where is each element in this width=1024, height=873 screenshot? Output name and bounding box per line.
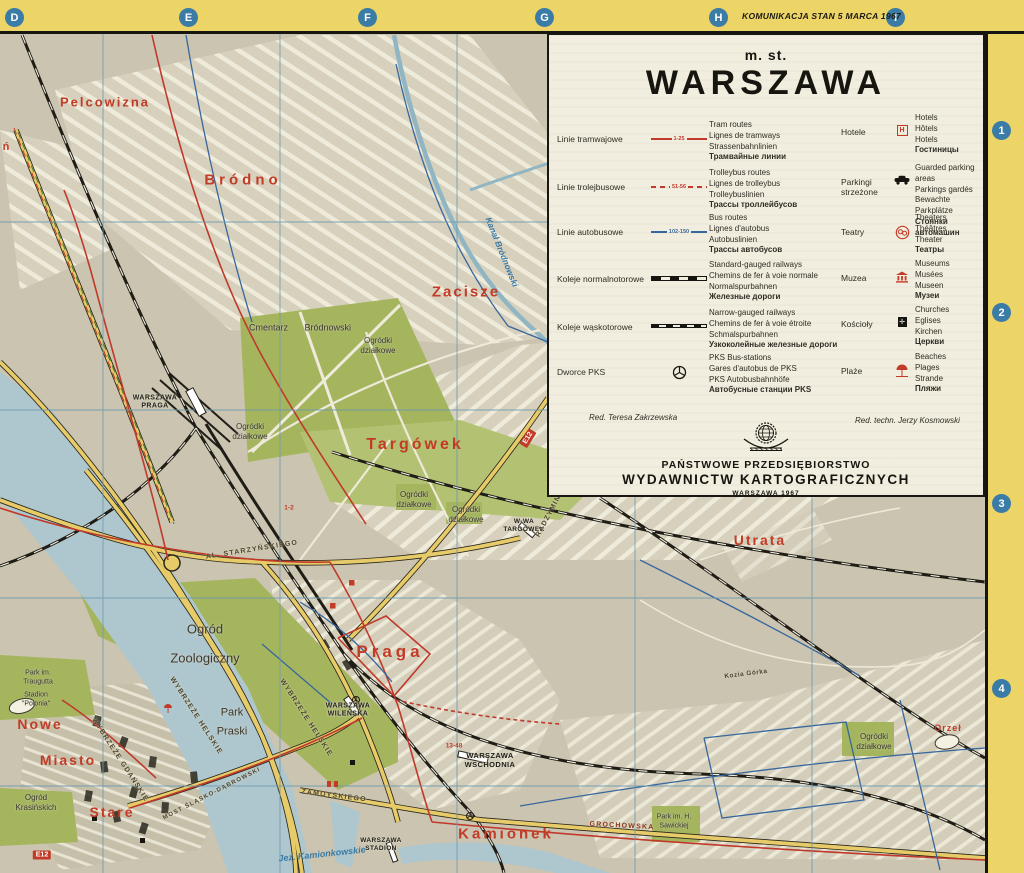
legend-translation: Churches bbox=[915, 305, 949, 316]
legend-translation: Strassenbahnlinien bbox=[709, 142, 786, 153]
legend-translation: Трамвайные линии bbox=[709, 152, 786, 163]
legend-row-pks: Dworce PKS PKS Bus-stations Gares d'auto… bbox=[557, 353, 811, 396]
legend-translation: Hotels bbox=[915, 113, 959, 124]
church-icon bbox=[140, 838, 145, 843]
grid-marker-G: G bbox=[535, 8, 554, 27]
hotel-icon: H bbox=[897, 125, 908, 136]
legend-translation: Bus routes bbox=[709, 213, 782, 224]
legend-translation: Théâtres bbox=[915, 224, 947, 235]
publisher-line1: PAŃSTWOWE PRZEDSIĘBIORSTWO bbox=[549, 459, 983, 471]
legend-label: Koleje normalnotorowe bbox=[557, 260, 649, 284]
map-sheet: Pelcowizna Bródno Zacisze Targówek Praga… bbox=[0, 0, 1024, 873]
district-label-orzel: Orzeł bbox=[934, 723, 962, 733]
legend-label: Linie trolejbusowe bbox=[557, 168, 649, 192]
legend-translation: Theaters bbox=[915, 213, 947, 224]
route-badge-e12-south: E12 bbox=[33, 851, 51, 860]
tram-route-numbers: 1-25 bbox=[672, 136, 687, 142]
legend-translation: PKS Autobusbahnhöfe bbox=[709, 375, 811, 386]
legend-translation: Автобусные станции PKS bbox=[709, 385, 811, 396]
legend-translation: Tram routes bbox=[709, 120, 786, 131]
legend-translation: Трассы автобусов bbox=[709, 245, 782, 256]
legend-translation: Lignes de tramways bbox=[709, 131, 786, 142]
publisher-logo bbox=[736, 419, 796, 457]
publisher-line2: WYDAWNICTW KARTOGRAFICZNYCH bbox=[549, 472, 983, 487]
museum-icon bbox=[895, 271, 909, 283]
legend-label: Plaże bbox=[841, 352, 889, 376]
legend-row-tram: Linie tramwajowe 1-25 Tram routes Lignes… bbox=[557, 120, 786, 163]
place-label-ogrodki-4: Ogródki działkowe bbox=[440, 505, 492, 525]
church-icon bbox=[350, 760, 355, 765]
trolleybus-line-symbol: 51-56 bbox=[651, 184, 707, 190]
legend-translation: Musées bbox=[915, 270, 950, 281]
place-label-stadion-polonia: Stadion "Polonia" bbox=[13, 691, 59, 709]
grid-marker-2: 2 bbox=[992, 303, 1011, 322]
place-label-ogrodki-2: Ogródki działkowe bbox=[224, 422, 276, 442]
trolleybus-route-numbers: 51-56 bbox=[670, 184, 688, 190]
district-label-pelcowizna: Pelcowizna bbox=[60, 95, 150, 110]
legend-translation: Церкви bbox=[915, 337, 949, 348]
district-label-utrata: Utrata bbox=[734, 532, 786, 548]
margin-band-right bbox=[988, 31, 1024, 873]
legend-label: Linie tramwajowe bbox=[557, 120, 649, 144]
tram-line-symbol: 1-25 bbox=[651, 136, 707, 142]
legend-label: Kościoły bbox=[841, 305, 889, 329]
legend-label: Linie autobusowe bbox=[557, 213, 649, 237]
place-label-ogrod-krasinskich: Ogród Krasińskich bbox=[8, 793, 64, 813]
district-label-nowe: Nowe bbox=[17, 716, 62, 732]
legend-translation: Narrow-gauged railways bbox=[709, 308, 837, 319]
legend-translation: Трассы троллейбусов bbox=[709, 200, 797, 211]
legend-translation: Eglises bbox=[915, 316, 949, 327]
narrow-railway-symbol bbox=[651, 324, 707, 328]
district-label-stare: Stare bbox=[89, 804, 134, 820]
legend-translation: Museums bbox=[915, 259, 950, 270]
map-title: m. st. WARSZAWA bbox=[549, 47, 983, 103]
legend-translation: Trolleybus routes bbox=[709, 168, 797, 179]
legend-translation: Hôtels bbox=[915, 124, 959, 135]
legend-translation: Узкоколейные железные дороги bbox=[709, 340, 837, 351]
legend-label: Koleje wąskotorowe bbox=[557, 308, 649, 332]
legend-translation: Normalspurbahnen bbox=[709, 282, 818, 293]
legend-translation: Музеи bbox=[915, 291, 950, 302]
place-label-ogrodki-1: Ogródki działkowe bbox=[352, 336, 404, 356]
legend-translation: Kirchen bbox=[915, 327, 949, 338]
route-number-13-48: 13-48 bbox=[446, 743, 463, 750]
legend-translation: Schmalspurbahnen bbox=[709, 330, 837, 341]
legend-translation: Пляжи bbox=[915, 384, 946, 395]
legend-translation: Standard-gauged railways bbox=[709, 260, 818, 271]
legend-translation: Театры bbox=[915, 245, 947, 256]
legend-row-theatres: Teatry Theaters Théâtres Theater Театры bbox=[841, 213, 947, 256]
standard-railway-symbol bbox=[651, 276, 707, 281]
district-label-kamionek: Kamionek bbox=[458, 826, 554, 843]
map-title-prefix: m. st. bbox=[549, 47, 983, 63]
legend-translation: Chemins de fer à voie normale bbox=[709, 271, 818, 282]
legend-translation: Lignes d'autobus bbox=[709, 224, 782, 235]
bus-line-symbol: 102-150 bbox=[651, 229, 707, 235]
station-label-warszawa-wschodnia: WARSZAWA WSCHODNIA bbox=[451, 751, 529, 769]
legend-panel: m. st. WARSZAWA Linie tramwajowe 1-25 Tr… bbox=[547, 33, 985, 497]
legend-translation: Trolleybuslinien bbox=[709, 190, 797, 201]
legend-translation: Theater bbox=[915, 235, 947, 246]
hotel-icon bbox=[349, 580, 355, 586]
edge-label-cutoff: ń bbox=[3, 141, 10, 153]
grid-marker-E: E bbox=[179, 8, 198, 27]
legend-label: Teatry bbox=[841, 213, 889, 237]
legend-row-narrow-rail: Koleje wąskotorowe Narrow-gauged railway… bbox=[557, 308, 837, 351]
place-label-ogrodki-3: Ogródki działkowe bbox=[388, 490, 440, 510]
legend-translation: Hotels bbox=[915, 135, 959, 146]
legend-translation: PKS Bus-stations bbox=[709, 353, 811, 364]
station-label-warszawa-praga: WARSZAWA PRAGA bbox=[120, 395, 190, 412]
place-label-ogrodki-5: Ogródki działkowe bbox=[848, 732, 900, 752]
legend-translation: Lignes de trolleybus bbox=[709, 179, 797, 190]
legend-label: Dworce PKS bbox=[557, 353, 649, 377]
district-label-praga: Praga bbox=[356, 642, 423, 662]
legend-translation: Gares d'autobus de PKS bbox=[709, 364, 811, 375]
legend-row-hotels: Hotele H Hotels Hôtels Hotels Гостиницы bbox=[841, 113, 959, 156]
pks-station-icon bbox=[672, 365, 687, 380]
map-frame-line-right bbox=[985, 31, 988, 873]
place-label-cmentarz-brodnowski: Cmentarz Bródnowski bbox=[220, 322, 380, 333]
map-frame-line-top bbox=[0, 31, 1024, 34]
legend-translation: Guarded parking areas bbox=[915, 163, 983, 185]
place-label-park-sawickiej: Park im. H. Sawickiej bbox=[652, 813, 696, 831]
place-label-park-praski: Park Praski bbox=[208, 703, 256, 740]
legend-label: Muzea bbox=[841, 259, 889, 283]
legend-translation: Museen bbox=[915, 281, 950, 292]
route-number-1-2: 1-2 bbox=[284, 505, 293, 512]
edition-note: KOMUNIKACJA STAN 5 MARCA 1967 bbox=[742, 11, 901, 21]
hotel-icon bbox=[330, 603, 336, 609]
legend-row-museums: Muzea Museums Musées Museen Музеи bbox=[841, 259, 950, 302]
station-label-warszawa-wilenska: WARSZAWA WILEŃSKA bbox=[313, 703, 383, 720]
legend-translation: Железные дороги bbox=[709, 292, 818, 303]
map-title-main: WARSZAWA bbox=[549, 64, 983, 103]
legend-translation: Гостиницы bbox=[915, 145, 959, 156]
car-icon bbox=[893, 175, 911, 185]
legend-label: Parkingi strzeżone bbox=[841, 163, 889, 197]
legend-translation: Autobuslinien bbox=[709, 235, 782, 246]
legend-row-standard-rail: Koleje normalnotorowe Standard-gauged ra… bbox=[557, 260, 818, 303]
church-icon: ✛ bbox=[898, 317, 907, 327]
beach-umbrella-icon bbox=[895, 364, 909, 378]
bus-route-numbers: 102-150 bbox=[667, 229, 691, 235]
theatre-masks-icon bbox=[895, 225, 910, 240]
legend-translation: Parkings gardés bbox=[915, 185, 983, 196]
place-label-park-traugutta: Park im. Traugutta bbox=[16, 669, 60, 687]
publisher-block: PAŃSTWOWE PRZEDSIĘBIORSTWO WYDAWNICTW KA… bbox=[549, 459, 983, 497]
legend-label: Hotele bbox=[841, 113, 889, 137]
legend-translation: Chemins de fer à voie étroite bbox=[709, 319, 837, 330]
district-label-brodno: Bródno bbox=[204, 172, 281, 189]
district-label-targowek: Targówek bbox=[366, 436, 464, 454]
legend-row-bus: Linie autobusowe 102-150 Bus routes Lign… bbox=[557, 213, 782, 256]
grid-marker-F: F bbox=[358, 8, 377, 27]
grid-marker-3: 3 bbox=[992, 494, 1011, 513]
legend-row-trolleybus: Linie trolejbusowe 51-56 Trolleybus rout… bbox=[557, 168, 797, 211]
legend-translation: Strande bbox=[915, 374, 946, 385]
district-label-miasto: Miasto bbox=[40, 752, 96, 768]
legend-row-beaches: Plaże Beaches Plages Strande Пляжи bbox=[841, 352, 946, 395]
place-label-zoo: Ogród Zoologiczny bbox=[160, 615, 250, 672]
grid-marker-H: H bbox=[709, 8, 728, 27]
grid-marker-D: D bbox=[5, 8, 24, 27]
legend-translation: Plages bbox=[915, 363, 946, 374]
publisher-line3: WARSZAWA 1967 bbox=[549, 490, 983, 497]
legend-row-churches: Kościoły ✛ Churches Eglises Kirchen Церк… bbox=[841, 305, 949, 348]
grid-marker-4: 4 bbox=[992, 679, 1011, 698]
roundabout bbox=[164, 555, 180, 571]
legend-translation: Beaches bbox=[915, 352, 946, 363]
district-label-zacisze: Zacisze bbox=[432, 284, 500, 301]
grid-marker-1: 1 bbox=[992, 121, 1011, 140]
